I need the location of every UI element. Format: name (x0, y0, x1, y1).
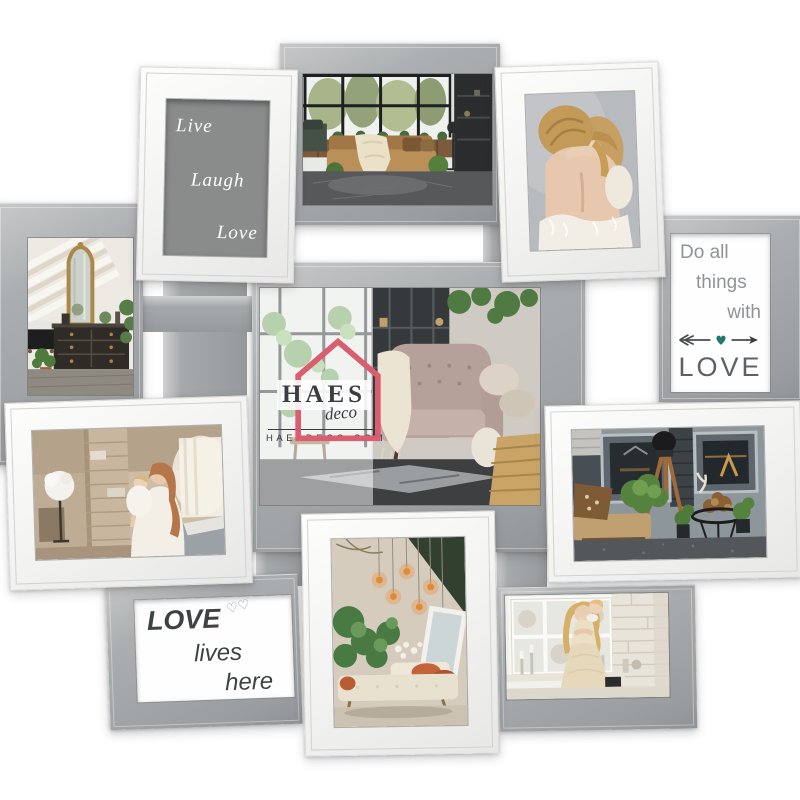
lll-word-laugh: Laugh (191, 169, 245, 192)
connector-bar (140, 296, 256, 332)
frame-top-living-room (280, 43, 500, 225)
do-all-line-3: with (727, 302, 761, 324)
watermark-logo: HAES deco HAESDECO.COM (266, 334, 382, 444)
do-all-line-1: Do all (680, 242, 729, 264)
do-all-love-word: LOVE (678, 352, 762, 383)
frame-window-family (497, 584, 697, 731)
photo-greenhouse-sofa (331, 537, 467, 727)
frame-live-laugh-love: Live Laugh Love (136, 66, 298, 283)
frame-do-all-things: Do all things with LOVE (658, 215, 800, 402)
frame-center-armchair: HAES deco HAESDECO.COM (252, 262, 585, 552)
do-all-line-2: things (696, 272, 747, 294)
product-photo: Do all things with LOVE (0, 0, 800, 800)
lll-word-live: Live (176, 115, 213, 138)
photo-top-living-room (303, 74, 492, 205)
frame-love-lives-here: LOVE ♡♡ lives here (104, 574, 302, 731)
lll-word-love: Love (217, 222, 258, 245)
photo-tripod-bench (572, 426, 767, 561)
frame-tripod-bench (544, 400, 800, 582)
lovelives-word-here: here (225, 668, 274, 698)
arrow-heart-icon (677, 332, 765, 348)
photo-center-armchair: HAES deco HAESDECO.COM (260, 288, 540, 505)
panel-love-lives-here: LOVE ♡♡ lives here (134, 595, 294, 702)
mat-live-laugh-love: Live Laugh Love (163, 99, 269, 257)
photo-mother-child-brick (32, 425, 225, 560)
hearts-doodle: ♡♡ (225, 596, 251, 617)
lovelives-word-lives: lives (194, 639, 243, 669)
photo-mirror-room (28, 238, 133, 395)
photo-mother-daughter-hug (525, 91, 639, 251)
frame-greenhouse-sofa (301, 510, 499, 756)
frame-mother-child-brick (4, 395, 253, 591)
lovelives-word-love: LOVE (146, 603, 221, 637)
photo-window-family (505, 593, 670, 700)
panel-do-all-things: Do all things with LOVE (671, 234, 770, 392)
frame-mother-daughter-hug (494, 61, 665, 283)
